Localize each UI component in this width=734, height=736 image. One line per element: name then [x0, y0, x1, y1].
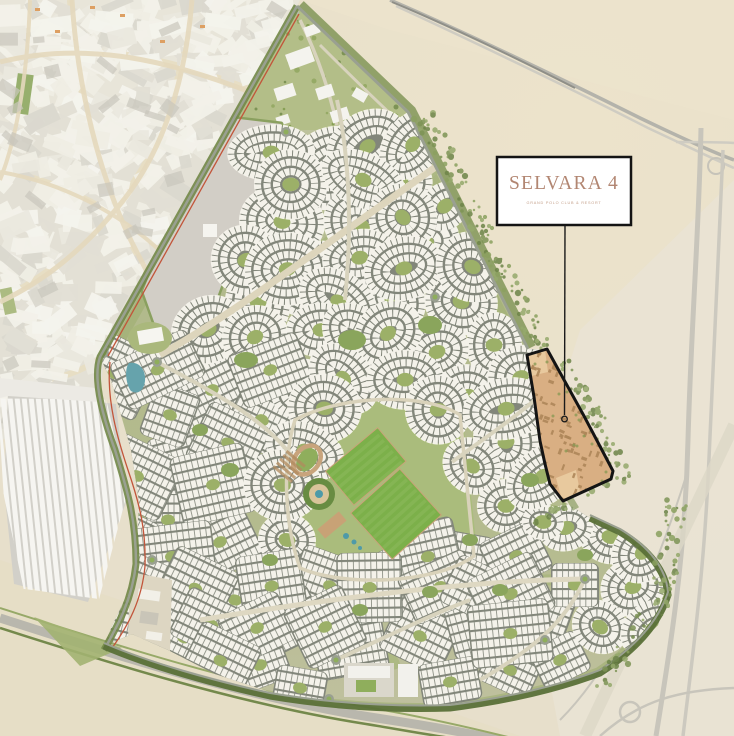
svg-text:SELVARA 4: SELVARA 4 [509, 173, 619, 194]
svg-text:GRAND POLO CLUB & RESORT: GRAND POLO CLUB & RESORT [527, 201, 602, 205]
